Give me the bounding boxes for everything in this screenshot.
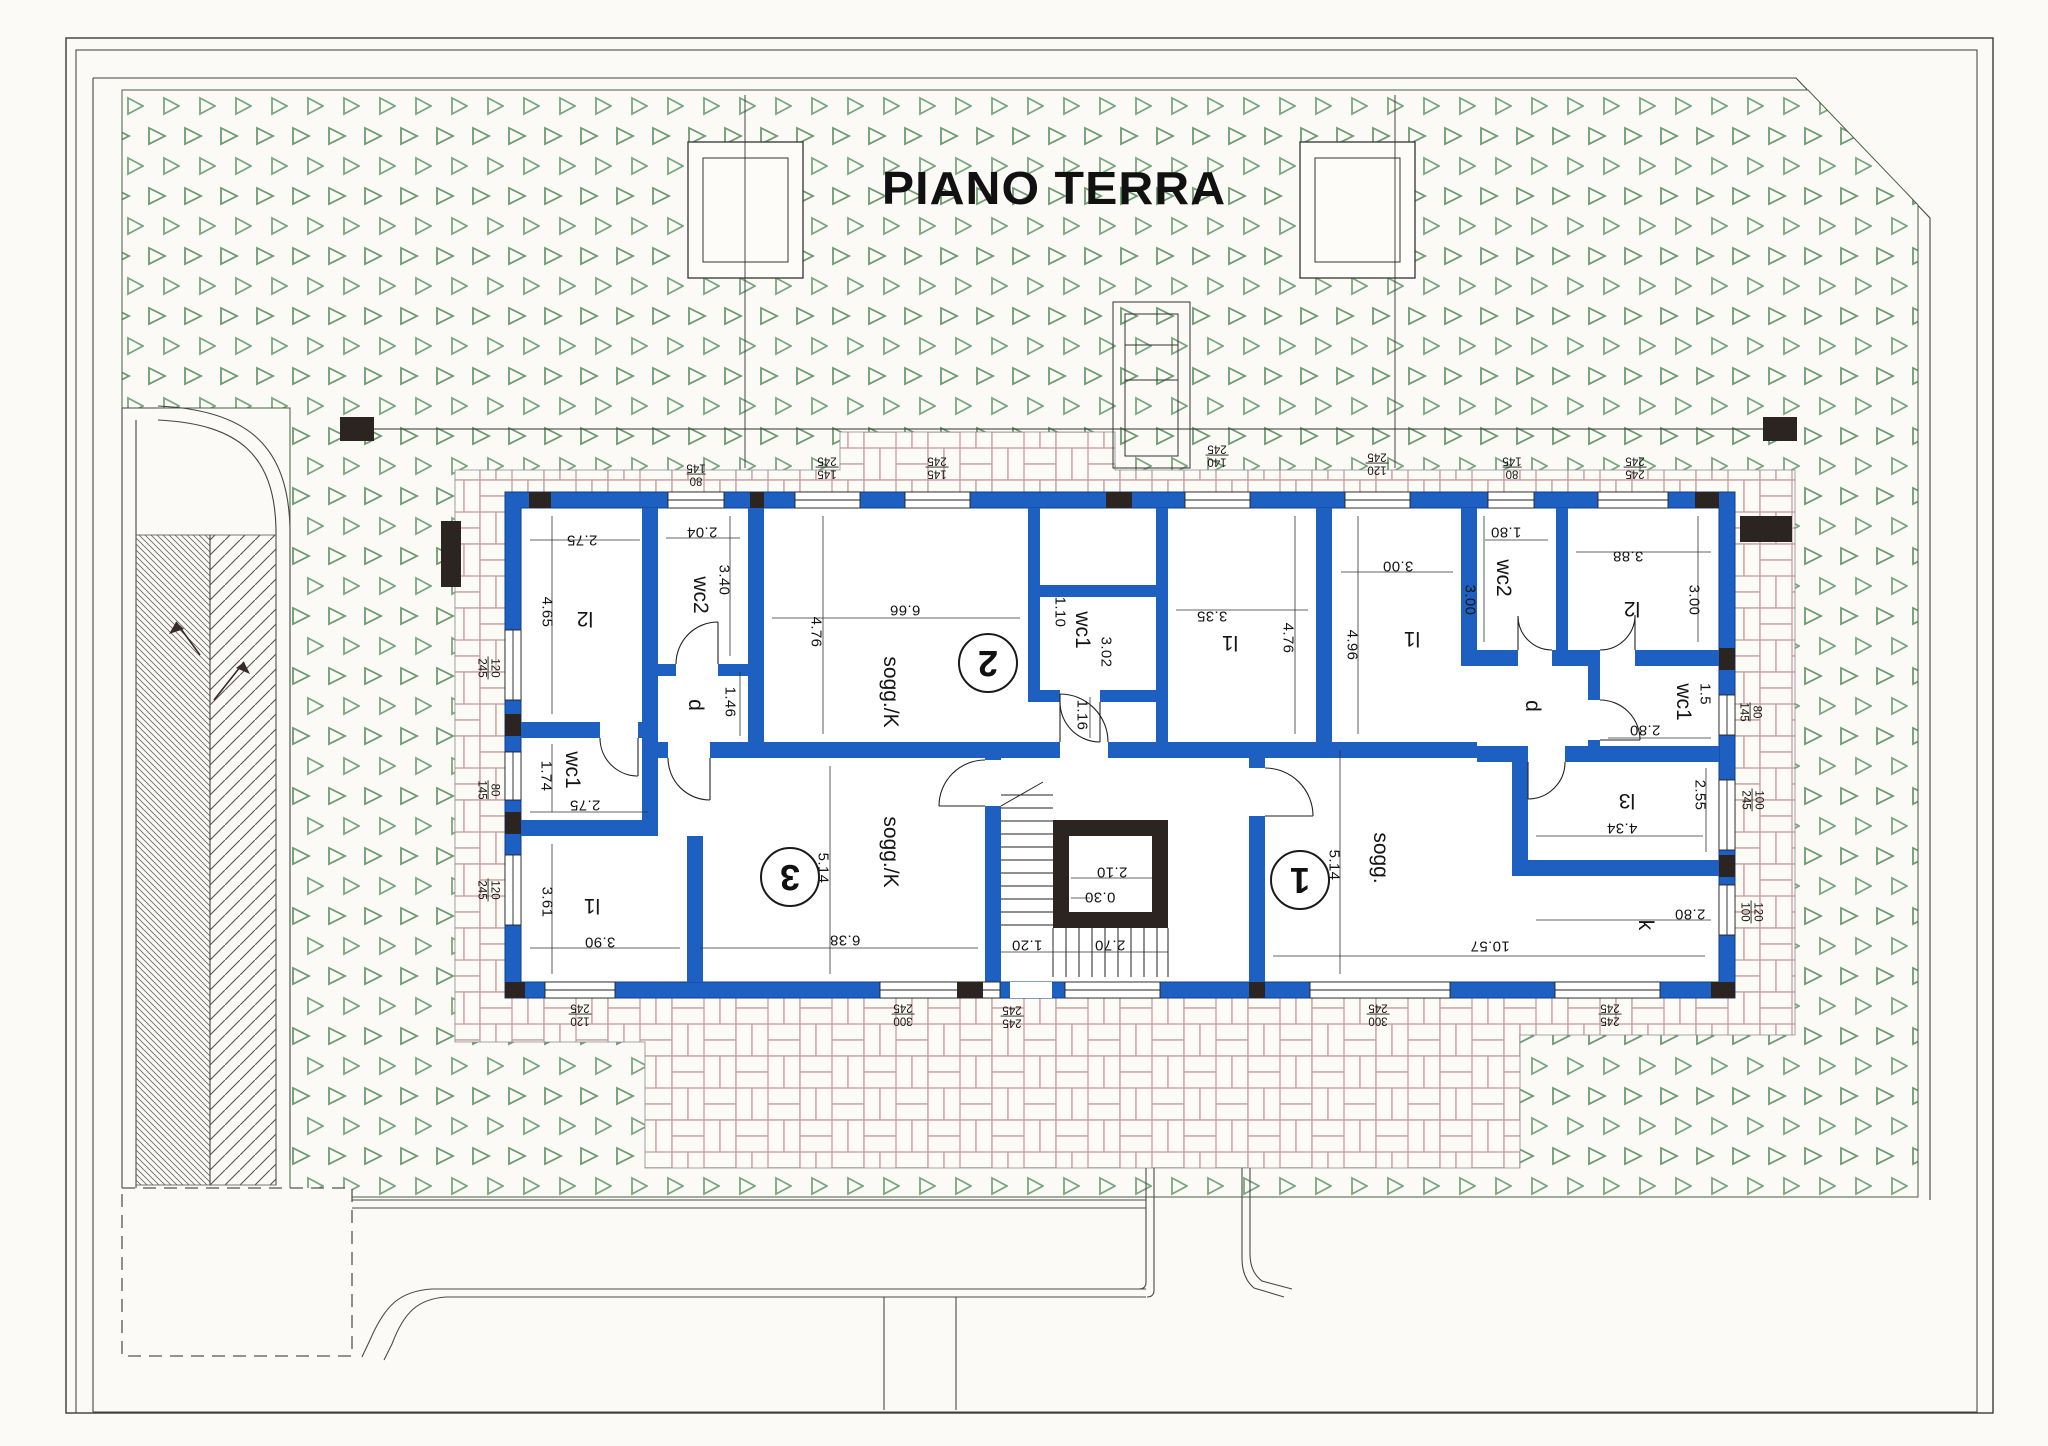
floor-plan-drawing <box>0 0 2048 1446</box>
room-label-a3-wc2: wc2 <box>688 576 712 613</box>
dim-a3-wc2-w: 2.04 <box>687 524 718 541</box>
room-label-a3-wc1: wc1 <box>560 751 584 788</box>
window-size-t7: 245245 <box>1623 454 1646 479</box>
apartment-3-badge: 3 <box>760 847 820 907</box>
dim-a2-wc1-w: 3.02 <box>1098 637 1115 668</box>
dim-stair-step: 0.30 <box>1085 889 1116 906</box>
apartment-2-badge: 2 <box>958 633 1018 693</box>
page-title: PIANO TERRA <box>882 161 1226 215</box>
window-size-b3: 245245 <box>1000 1003 1023 1028</box>
dim-a2-sogg-w: 6.66 <box>890 602 921 619</box>
dim-a3-d-h: 1.46 <box>722 687 739 718</box>
dim-a3-wc2-h: 3.40 <box>716 565 733 596</box>
room-label-a1-wc2: wc2 <box>1491 559 1515 596</box>
parking-area-dashed <box>122 1188 352 1356</box>
room-label-a1-k: k <box>1633 920 1657 931</box>
dim-a2-wc1-h: 1.10 <box>1052 597 1069 628</box>
window-size-b1: 120245 <box>568 1001 591 1026</box>
room-label-a2-sogg: sogg./K <box>878 656 902 727</box>
window-size-l1: 120245 <box>475 656 500 679</box>
dim-a1-l3-h: 2.55 <box>1692 780 1709 811</box>
window-size-t4: 140245 <box>1205 442 1228 467</box>
dim-a1-k-w: 2.80 <box>1675 906 1706 923</box>
room-label-a1-wc1: wc1 <box>1671 683 1695 720</box>
dim-a2-sogg-h: 4.76 <box>808 617 825 648</box>
dim-a3-wc1-h: 1.74 <box>538 761 555 792</box>
dim-a2-l1-h: 4.76 <box>1280 623 1297 654</box>
window-size-r3: 120100 <box>1738 900 1763 923</box>
window-size-t6: 80145 <box>1502 454 1521 479</box>
window-size-t1: 80145 <box>686 461 705 486</box>
dim-a1-l3-w: 4.34 <box>1607 820 1638 837</box>
dim-a3-l1-w: 3.90 <box>585 934 616 951</box>
dim-a2-entry-door: 1.16 <box>1074 700 1091 731</box>
window-size-b4: 300245 <box>1366 1001 1389 1026</box>
window-size-t2: 145245 <box>815 454 838 479</box>
window-size-l2: 80145 <box>475 780 500 799</box>
dim-a1-wc1-h: 1.5 <box>1697 683 1714 705</box>
dim-a3-l1-h: 3.61 <box>539 887 556 918</box>
dim-a1-wc2-w: 1.80 <box>1491 524 1522 541</box>
dim-stair-flight1: 1.20 <box>1012 937 1043 954</box>
room-label-a2-wc1: wc1 <box>1070 611 1094 648</box>
room-label-a1-l2: l2 <box>1624 596 1640 620</box>
dim-a3-l2-h: 4.65 <box>539 597 556 628</box>
dim-a1-wc1-w: 2.80 <box>1630 722 1661 739</box>
dim-a1-wc2-h: 3.00 <box>1462 585 1479 616</box>
dim-stair-flight2: 2.70 <box>1095 937 1126 954</box>
dim-a3-wc1-w: 2.75 <box>570 797 601 814</box>
dim-a1-l1-h: 4.96 <box>1344 630 1361 661</box>
room-label-a3-sogg: sogg./K <box>878 816 902 887</box>
apartment-1-badge: 1 <box>1270 850 1330 910</box>
dim-a2-l1-w: 3.35 <box>1197 608 1228 625</box>
window-size-r1: 80145 <box>1737 702 1762 721</box>
window-size-l3: 120245 <box>475 878 500 901</box>
garden-walkways <box>352 1168 1292 1410</box>
room-label-a3-l2: l2 <box>577 606 593 630</box>
room-label-a1-sogg: sogg. <box>1368 832 1392 883</box>
room-label-a1-l3: l3 <box>1619 788 1635 812</box>
room-label-a2-l1: l1 <box>1222 630 1238 654</box>
dim-a3-sogg-w: 6.38 <box>830 932 861 949</box>
dim-a1-l2-h: 3.00 <box>1686 585 1703 616</box>
light-well-1 <box>688 142 803 278</box>
room-label-a1-d: d <box>1520 700 1544 712</box>
dim-stair-shaft: 2.10 <box>1097 864 1128 881</box>
room-label-a3-d: d <box>683 699 707 711</box>
light-well-2 <box>1300 142 1415 278</box>
floor-plan-page: PIANO TERRA l2 2.75 4.65 wc2 2.04 3.40 w… <box>0 0 2048 1446</box>
window-size-t5: 120245 <box>1365 450 1388 475</box>
dim-a1-l2-w: 3.88 <box>1613 548 1644 565</box>
window-size-r2: 100245 <box>1739 788 1764 811</box>
room-label-a3-l1: l1 <box>584 893 600 917</box>
dim-a3-l2-w: 2.75 <box>567 532 598 549</box>
window-size-t3: 145245 <box>925 454 948 479</box>
window-size-b2: 300245 <box>891 1001 914 1026</box>
dim-a1-sogg-w: 10.57 <box>1470 938 1510 955</box>
room-label-a1-l1: l1 <box>1404 626 1420 650</box>
dim-a1-l1-w: 3.00 <box>1383 558 1414 575</box>
window-size-b5: 245245 <box>1598 1001 1621 1026</box>
